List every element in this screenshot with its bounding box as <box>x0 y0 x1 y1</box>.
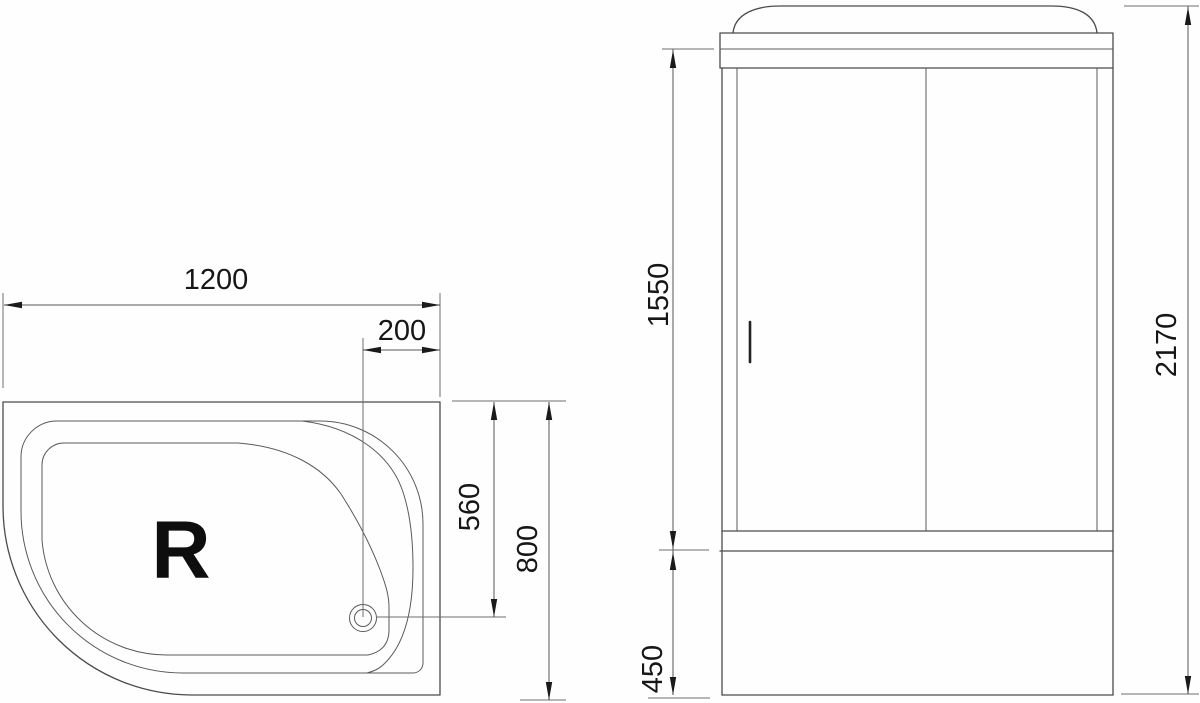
plan-orientation-label: R <box>151 505 210 596</box>
dim-base-height: 450 <box>637 550 676 695</box>
dim-overall-depth: 800 <box>512 402 552 700</box>
dim-total-height: 2170 <box>1151 6 1191 694</box>
dim-total-height-label: 2170 <box>1151 313 1183 378</box>
dim-overall-width: 1200 <box>4 264 440 308</box>
plan-rim-scurve <box>302 421 413 673</box>
dim-drain-offset-label: 200 <box>378 315 426 347</box>
plan-floor-outline <box>42 443 389 655</box>
dim-overall-width-label: 1200 <box>184 264 249 296</box>
dim-overall-depth-label: 800 <box>512 525 544 573</box>
front-view <box>720 6 1113 695</box>
dim-door-height: 1550 <box>643 49 676 550</box>
drawing-svg: R 1200 200 560 <box>0 0 1200 703</box>
technical-drawing-canvas: R 1200 200 560 <box>0 0 1200 703</box>
plan-dimensions: 1200 200 560 800 <box>3 264 566 700</box>
dim-base-height-label: 450 <box>637 645 669 693</box>
plan-view: R <box>3 402 440 695</box>
plan-outer-boundary <box>3 402 440 695</box>
front-dimensions: 1550 450 2170 <box>637 6 1199 698</box>
dim-drain-depth-label: 560 <box>454 483 486 531</box>
dim-drain-depth: 560 <box>454 402 497 617</box>
top-frame-band <box>720 33 1113 68</box>
dim-drain-offset: 200 <box>363 315 440 353</box>
roof-dome-profile <box>733 6 1097 33</box>
dim-door-height-label: 1550 <box>643 263 675 328</box>
